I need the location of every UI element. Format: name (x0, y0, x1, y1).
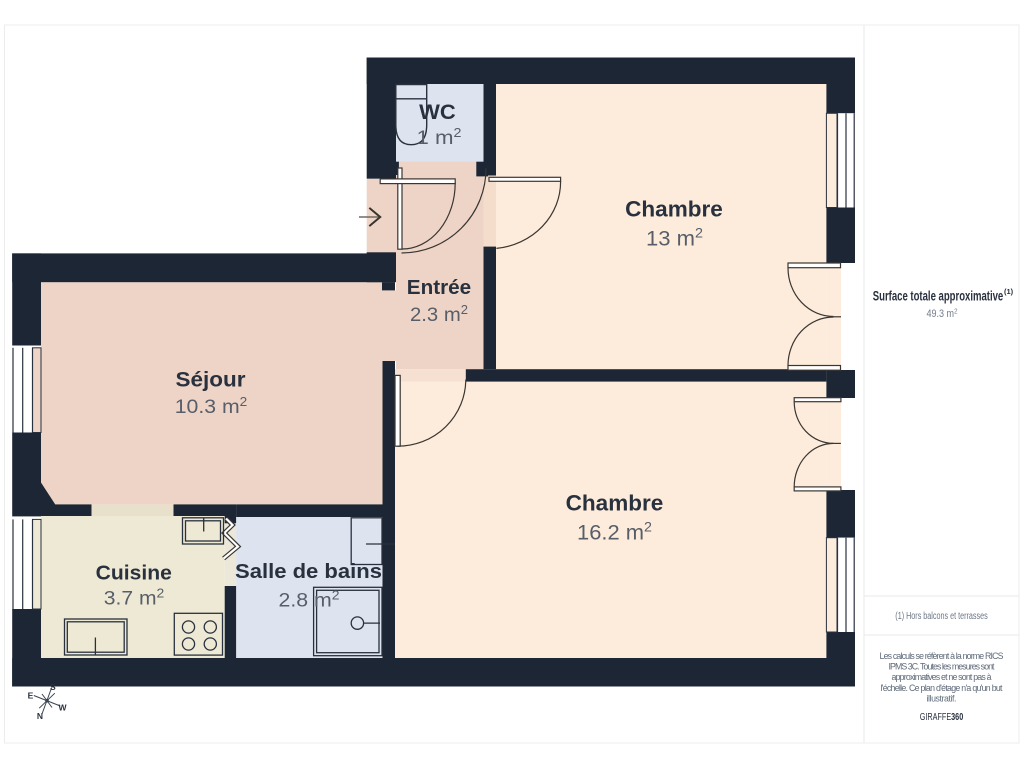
svg-text:W: W (58, 703, 67, 713)
svg-text:illustratif.: illustratif. (927, 693, 957, 703)
svg-text:Chambre: Chambre (566, 491, 664, 516)
svg-text:l'échelle. Ce plan d'étage n'a: l'échelle. Ce plan d'étage n'a qu'un but (881, 683, 1004, 693)
svg-text:Séjour: Séjour (176, 369, 246, 392)
svg-text:Surface totale approximative: Surface totale approximative (873, 288, 1004, 303)
svg-text:WC: WC (419, 100, 456, 124)
svg-text:2.3 m2: 2.3 m2 (410, 303, 468, 326)
svg-text:13 m2: 13 m2 (646, 225, 703, 251)
svg-text:Entrée: Entrée (407, 276, 471, 299)
svg-text:Salle de bains: Salle de bains (235, 561, 382, 583)
svg-text:49.3 m2: 49.3 m2 (927, 307, 958, 321)
svg-text:(1): (1) (1004, 287, 1014, 296)
svg-text:E: E (28, 691, 34, 701)
svg-text:approximatives et ne sont pas: approximatives et ne sont pas à (892, 672, 992, 682)
svg-text:IPMS 3C. Toutes les mesures so: IPMS 3C. Toutes les mesures sont (889, 662, 996, 672)
svg-text:10.3 m2: 10.3 m2 (175, 395, 248, 418)
svg-text:2.8 m2: 2.8 m2 (279, 589, 340, 612)
svg-text:Chambre: Chambre (625, 197, 723, 222)
svg-text:Cuisine: Cuisine (96, 563, 172, 585)
svg-text:Les calculs se réfèrent à la n: Les calculs se réfèrent à la norme RICS (880, 651, 1004, 661)
svg-text:GIRAFFE360: GIRAFFE360 (920, 712, 964, 723)
svg-text:(1) Hors balcons et terrasses: (1) Hors balcons et terrasses (895, 611, 987, 622)
svg-text:16.2 m2: 16.2 m2 (577, 519, 652, 545)
svg-text:3.7 m2: 3.7 m2 (104, 587, 165, 610)
svg-text:S: S (50, 682, 56, 692)
svg-text:N: N (37, 711, 43, 721)
